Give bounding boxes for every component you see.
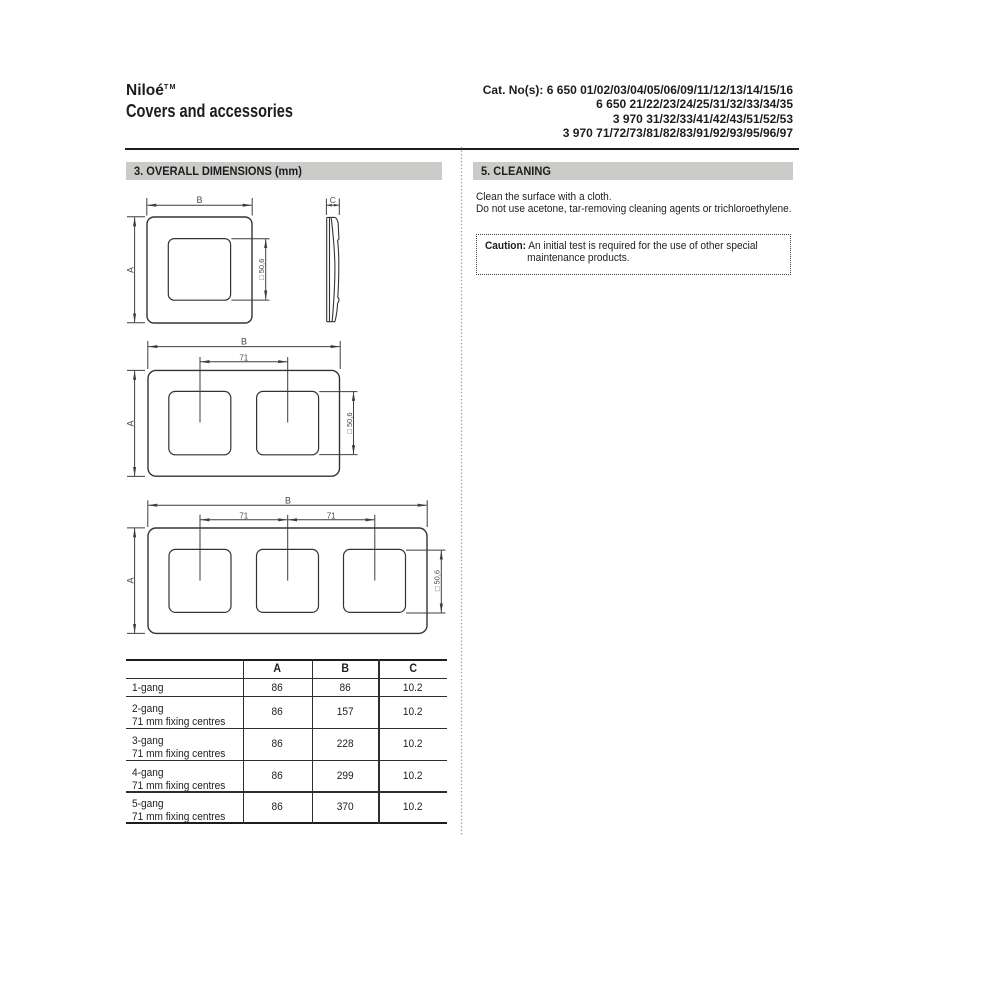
svg-text:□ 50,6: □ 50,6 [345, 412, 354, 433]
svg-text:B: B [196, 195, 202, 205]
svg-text:A: A [126, 577, 136, 583]
svg-text:71: 71 [239, 511, 248, 520]
svg-text:C: C [330, 195, 336, 205]
svg-text:□ 50,6: □ 50,6 [257, 259, 266, 280]
svg-text:□ 50,6: □ 50,6 [433, 570, 442, 591]
svg-text:A: A [126, 267, 136, 273]
svg-text:71: 71 [327, 511, 336, 520]
svg-text:71: 71 [239, 353, 248, 362]
svg-text:B: B [285, 495, 291, 505]
svg-text:B: B [241, 337, 247, 347]
svg-text:A: A [126, 420, 136, 426]
